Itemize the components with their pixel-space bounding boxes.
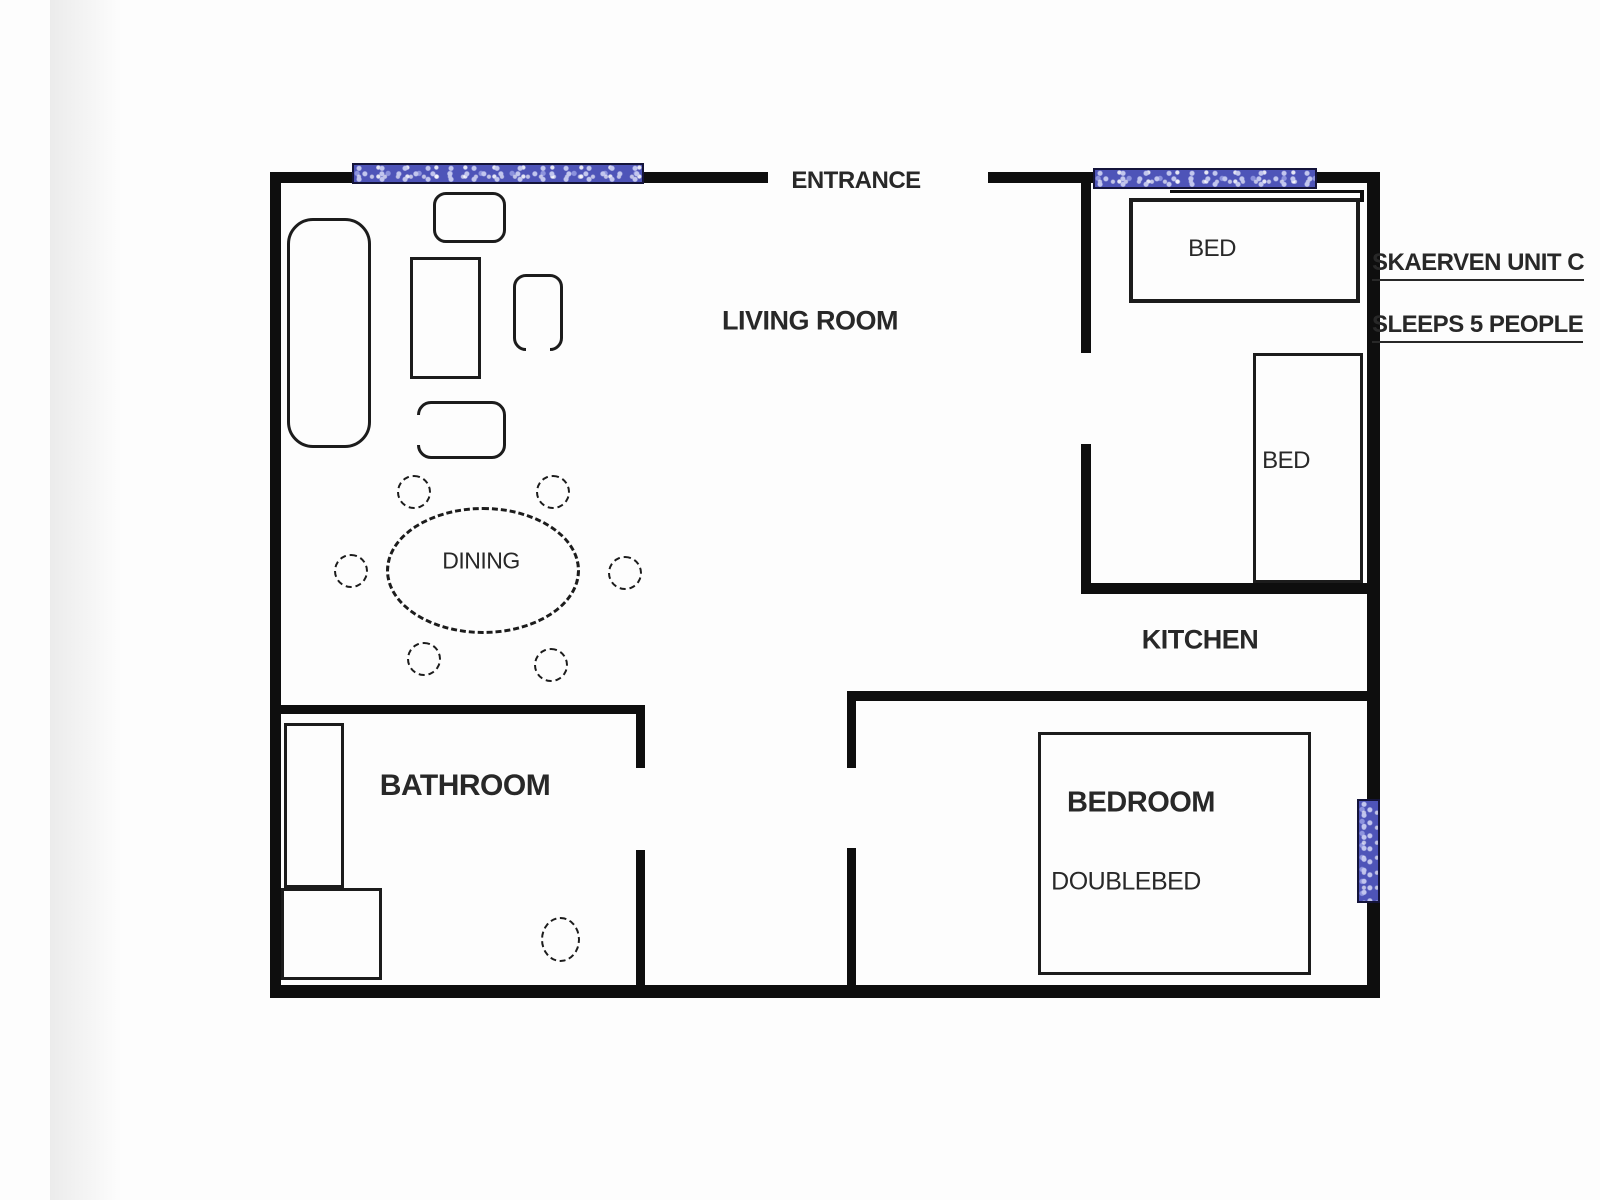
capacity-label: SLEEPS 5 PEOPLE — [1372, 313, 1583, 343]
twin-bedroom-left-wall-lower — [1081, 444, 1091, 583]
window-living-room — [352, 163, 644, 184]
bathroom-top-wall — [270, 705, 645, 714]
main-bedroom-top-wall — [847, 691, 1367, 701]
dining-chair-5 — [407, 642, 441, 676]
window-sill-line — [1170, 190, 1364, 193]
window-twin-bedroom — [1093, 168, 1317, 189]
doublebed-label: DOUBLEBED — [1051, 870, 1201, 895]
window-sill-hook — [1360, 190, 1364, 202]
dining-chair-1 — [397, 475, 431, 509]
unit-title-label: SKAERVEN UNIT C — [1372, 251, 1584, 281]
bed-top-label: BED — [1188, 237, 1236, 261]
dining-chair-3 — [334, 554, 368, 588]
entrance-label: ENTRANCE — [791, 169, 920, 193]
dining-label: DINING — [442, 550, 520, 573]
right-wall-stub — [1368, 734, 1380, 774]
bathroom-right-wall-lower — [636, 850, 645, 985]
bathroom-right-wall-upper — [636, 705, 645, 768]
shower-unit — [284, 723, 344, 888]
armchair-top — [433, 192, 506, 243]
twin-bedroom-left-wall-upper — [1081, 172, 1091, 353]
outer-bottom-wall — [270, 985, 1380, 998]
single-bed-top — [1129, 198, 1360, 303]
main-bedroom-left-wall-lower — [847, 848, 856, 985]
main-bedroom-left-wall-upper — [847, 691, 856, 768]
outer-left-wall — [270, 172, 281, 998]
bed-right-label: BED — [1262, 449, 1310, 473]
side-chair — [513, 274, 563, 351]
kitchen-label: KITCHEN — [1142, 627, 1259, 654]
window-main-bedroom — [1357, 799, 1380, 903]
floor-plan: ENTRANCE LIVING ROOM DINING KITCHEN BATH… — [0, 0, 1600, 1200]
dining-chair-2 — [536, 475, 570, 509]
vanity-unit — [281, 888, 382, 980]
dining-chair-6 — [534, 648, 568, 682]
living-room-label: LIVING ROOM — [722, 308, 898, 335]
armchair-bottom-opening — [416, 415, 425, 444]
toilet — [541, 917, 580, 962]
bathroom-label: BATHROOM — [380, 771, 550, 801]
coffee-table — [410, 257, 481, 379]
side-chair-opening — [526, 343, 551, 352]
twin-bedroom-bottom-wall — [1081, 583, 1380, 594]
bedroom-label: BEDROOM — [1067, 789, 1215, 818]
armchair-bottom — [417, 401, 506, 459]
double-bed — [1038, 732, 1311, 975]
sofa — [287, 218, 371, 448]
dining-chair-4 — [608, 556, 642, 590]
